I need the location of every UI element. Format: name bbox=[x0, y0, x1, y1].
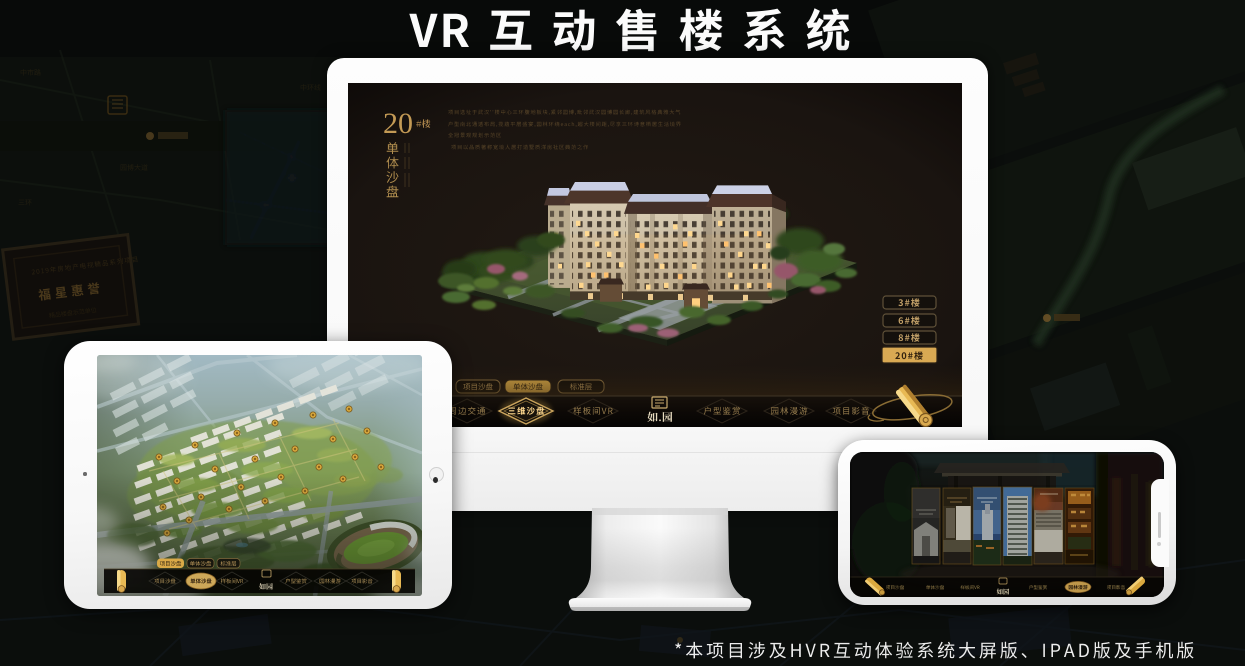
svg-text:20: 20 bbox=[383, 107, 413, 140]
